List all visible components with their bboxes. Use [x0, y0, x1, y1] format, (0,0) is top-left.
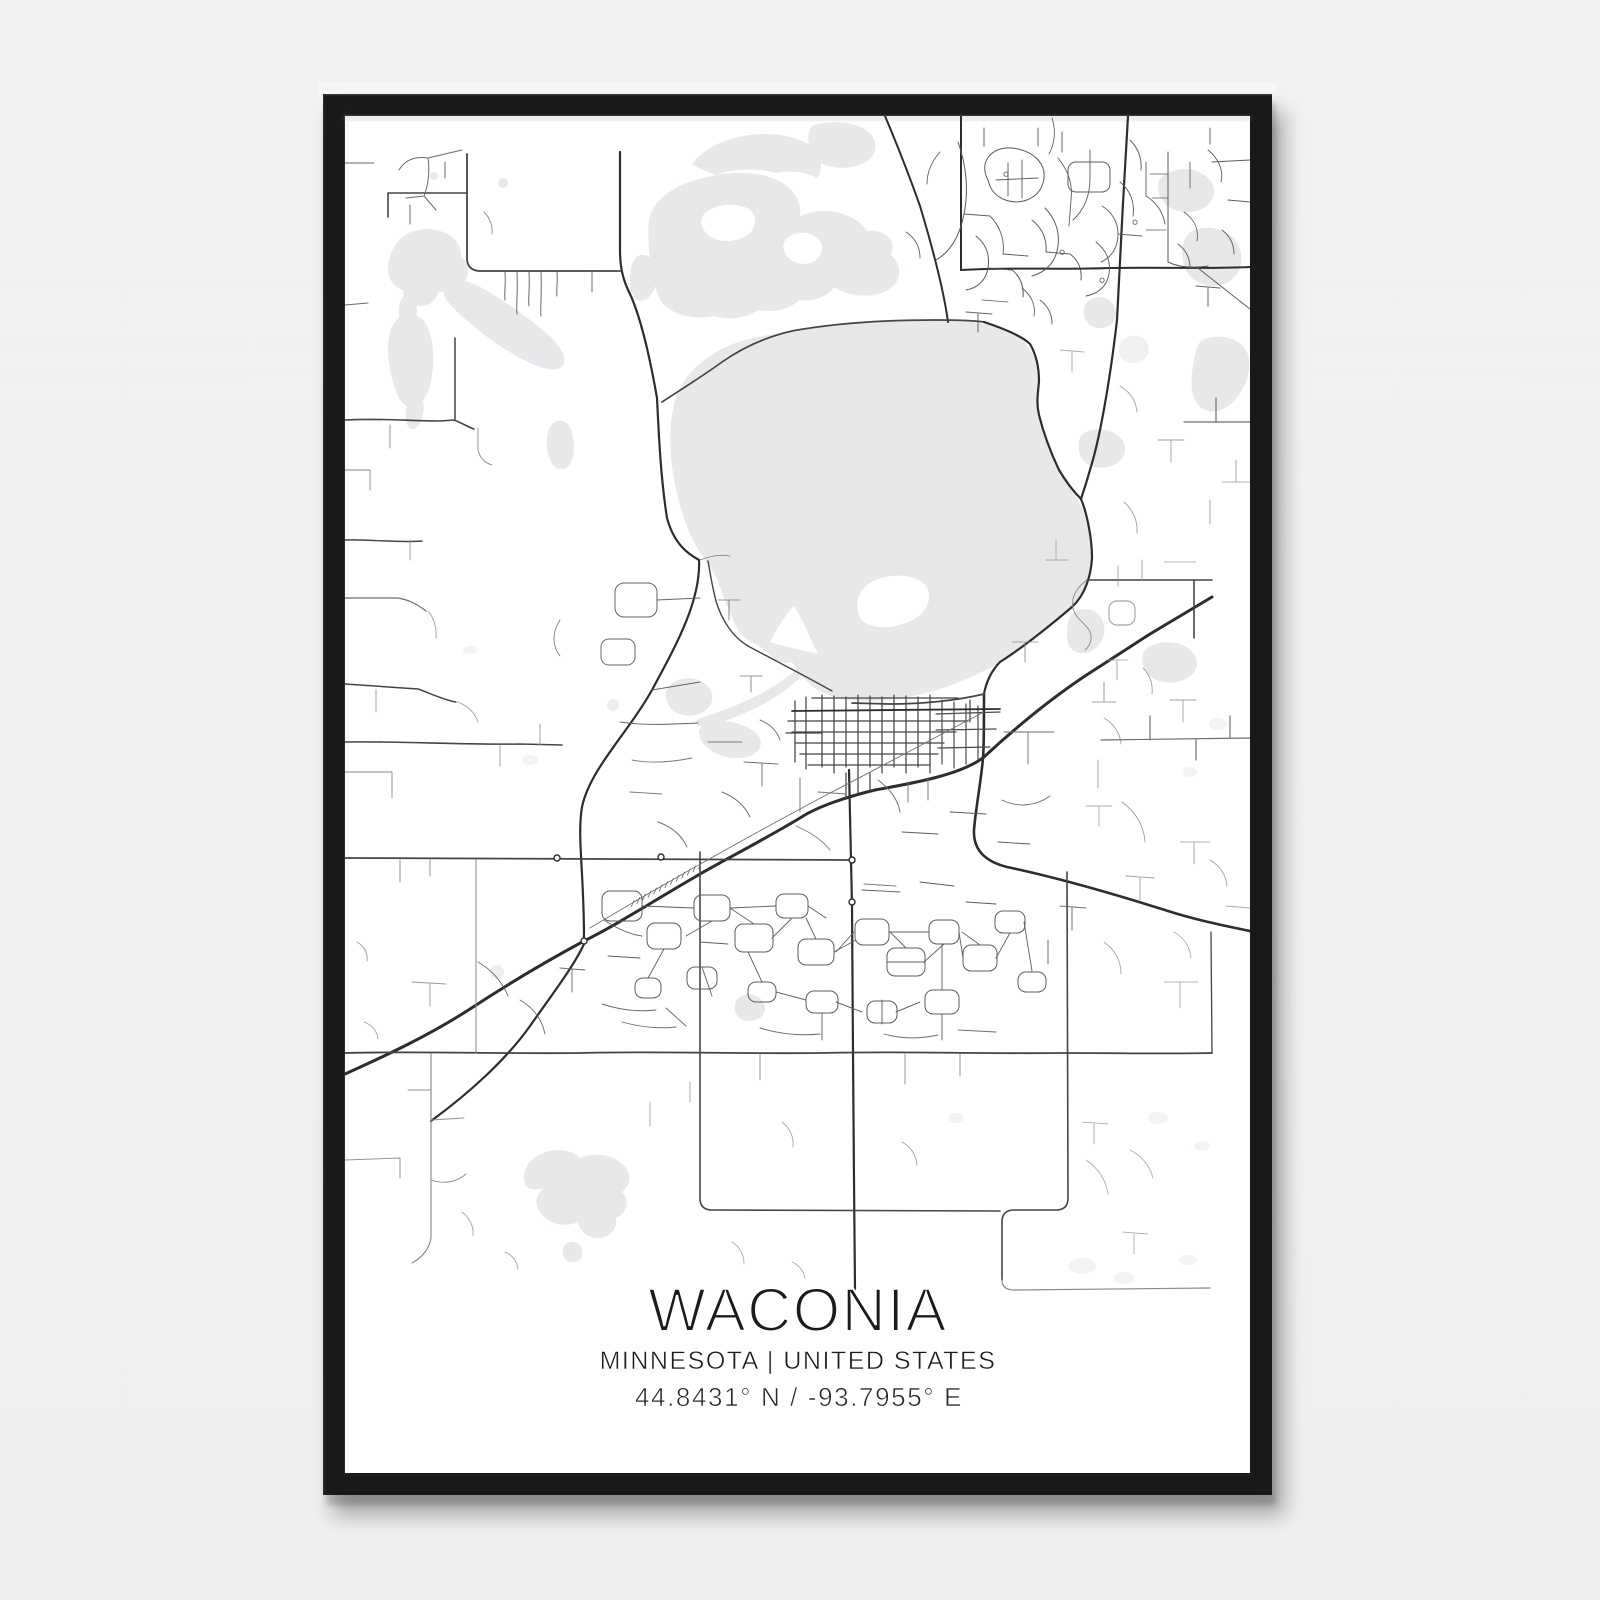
svg-text:MINNESOTA | UNITED STATES: MINNESOTA | UNITED STATES	[600, 1347, 997, 1375]
svg-text:WACONIA: WACONIA	[648, 1276, 948, 1344]
svg-text:44.8431° N / -93.7955° E: 44.8431° N / -93.7955° E	[635, 1382, 963, 1412]
